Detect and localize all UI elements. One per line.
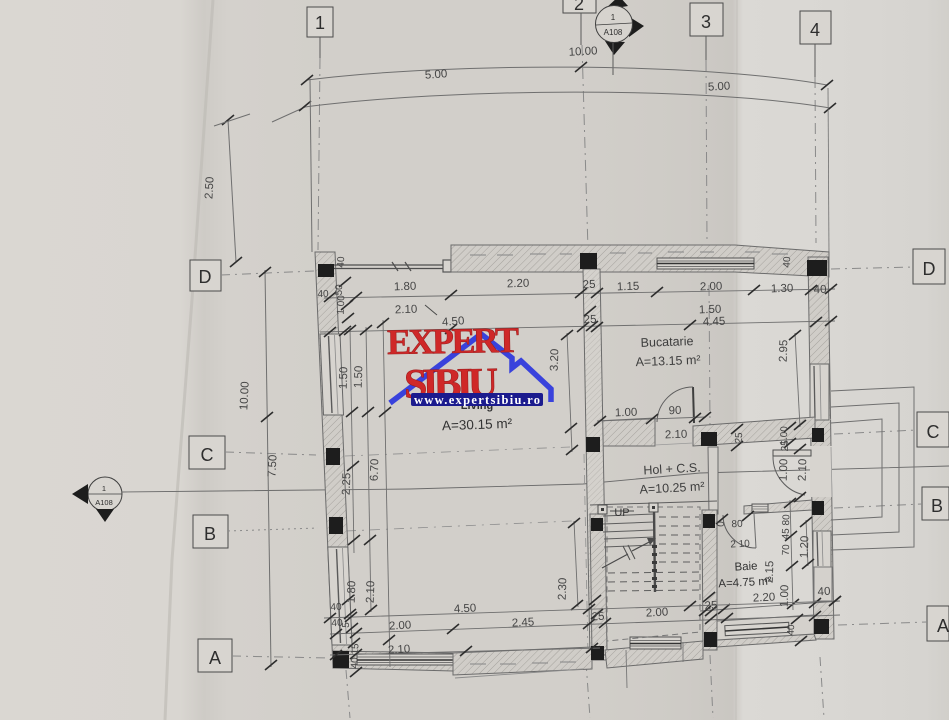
svg-text:1.30: 1.30: [771, 283, 794, 296]
svg-text:A: A: [209, 648, 221, 668]
svg-text:1.00: 1.00: [615, 407, 638, 420]
svg-text:1.00: 1.00: [336, 295, 348, 315]
svg-text:2.50: 2.50: [203, 176, 216, 199]
svg-text:90: 90: [668, 405, 681, 417]
svg-text:3.20: 3.20: [549, 348, 562, 371]
svg-text:70: 70: [781, 544, 792, 556]
svg-text:40: 40: [786, 624, 797, 636]
svg-text:2.20: 2.20: [507, 278, 530, 291]
svg-text:40: 40: [814, 284, 827, 296]
svg-text:C: C: [927, 422, 940, 442]
svg-text:1.80: 1.80: [346, 580, 359, 603]
svg-text:1.15: 1.15: [617, 281, 640, 294]
svg-text:B: B: [204, 524, 216, 544]
svg-text:50: 50: [334, 284, 345, 296]
svg-text:7.50: 7.50: [266, 454, 279, 477]
svg-text:25: 25: [704, 600, 717, 613]
svg-text:2.10: 2.10: [388, 643, 411, 656]
svg-text:4.50: 4.50: [454, 602, 477, 615]
svg-text:C: C: [201, 445, 214, 465]
svg-text:0: 0: [716, 521, 727, 527]
svg-text:2.25: 2.25: [341, 472, 354, 495]
svg-text:1: 1: [611, 13, 616, 22]
svg-text:2.10: 2.10: [665, 429, 688, 442]
svg-text:40: 40: [817, 586, 830, 599]
svg-text:10.00: 10.00: [568, 45, 597, 58]
svg-text:5.00: 5.00: [708, 80, 731, 93]
svg-text:1.00: 1.00: [779, 584, 792, 607]
svg-text:25: 25: [591, 611, 604, 624]
svg-text:10.00: 10.00: [238, 381, 251, 410]
svg-text:40: 40: [330, 602, 342, 614]
svg-text:80: 80: [731, 519, 743, 531]
svg-text:D: D: [923, 259, 936, 279]
svg-text:4.45: 4.45: [703, 316, 726, 329]
svg-text:EXPERT: EXPERT: [387, 320, 520, 362]
svg-text:25: 25: [584, 314, 597, 326]
svg-text:5: 5: [341, 622, 352, 628]
svg-text:2.00: 2.00: [389, 619, 412, 632]
svg-text:45 80: 45 80: [781, 514, 793, 540]
svg-text:A=13.15 m²: A=13.15 m²: [635, 353, 700, 369]
svg-text:40: 40: [317, 289, 329, 300]
svg-text:2 10: 2 10: [730, 538, 750, 550]
svg-text:2.10: 2.10: [395, 304, 418, 317]
svg-text:A108: A108: [95, 498, 113, 507]
svg-text:D: D: [199, 267, 212, 287]
svg-text:A108: A108: [604, 28, 623, 37]
svg-text:Bucatarie: Bucatarie: [640, 334, 693, 350]
svg-text:2.45: 2.45: [512, 616, 535, 629]
svg-text:40 15: 40 15: [350, 643, 362, 669]
svg-text:3: 3: [701, 12, 711, 32]
svg-text:2: 2: [574, 0, 584, 14]
svg-text:2.10: 2.10: [797, 458, 810, 481]
svg-text:B: B: [931, 496, 943, 516]
svg-text:25: 25: [734, 432, 745, 444]
svg-text:1.80: 1.80: [394, 281, 417, 294]
svg-text:2.00: 2.00: [700, 281, 723, 294]
svg-text:6.70: 6.70: [369, 458, 382, 481]
svg-text:2.95: 2.95: [778, 339, 791, 362]
svg-text:A=30.15 m²: A=30.15 m²: [442, 416, 513, 433]
svg-text:40: 40: [782, 256, 793, 268]
svg-text:25: 25: [583, 279, 596, 291]
svg-text:1: 1: [315, 13, 325, 33]
svg-text:UP: UP: [614, 507, 629, 519]
svg-text:1: 1: [102, 484, 106, 493]
svg-text:1.20: 1.20: [799, 535, 812, 558]
svg-text:25: 25: [780, 440, 791, 452]
svg-text:1.00: 1.00: [778, 458, 791, 481]
svg-text:Baie: Baie: [734, 560, 758, 573]
svg-text:Hol + C.S.: Hol + C.S.: [643, 461, 701, 478]
svg-text:A: A: [937, 616, 949, 636]
svg-text:1.50: 1.50: [699, 304, 722, 317]
svg-text:5.00: 5.00: [425, 68, 448, 82]
svg-text:1.50: 1.50: [338, 366, 351, 389]
svg-text:4: 4: [810, 20, 820, 40]
svg-text:40: 40: [336, 256, 347, 268]
svg-text:2.00: 2.00: [646, 606, 669, 619]
svg-text:2.10: 2.10: [365, 580, 378, 603]
svg-text:2.30: 2.30: [557, 577, 570, 600]
svg-text:1.50: 1.50: [353, 365, 366, 388]
svg-text:2.20: 2.20: [753, 591, 776, 604]
